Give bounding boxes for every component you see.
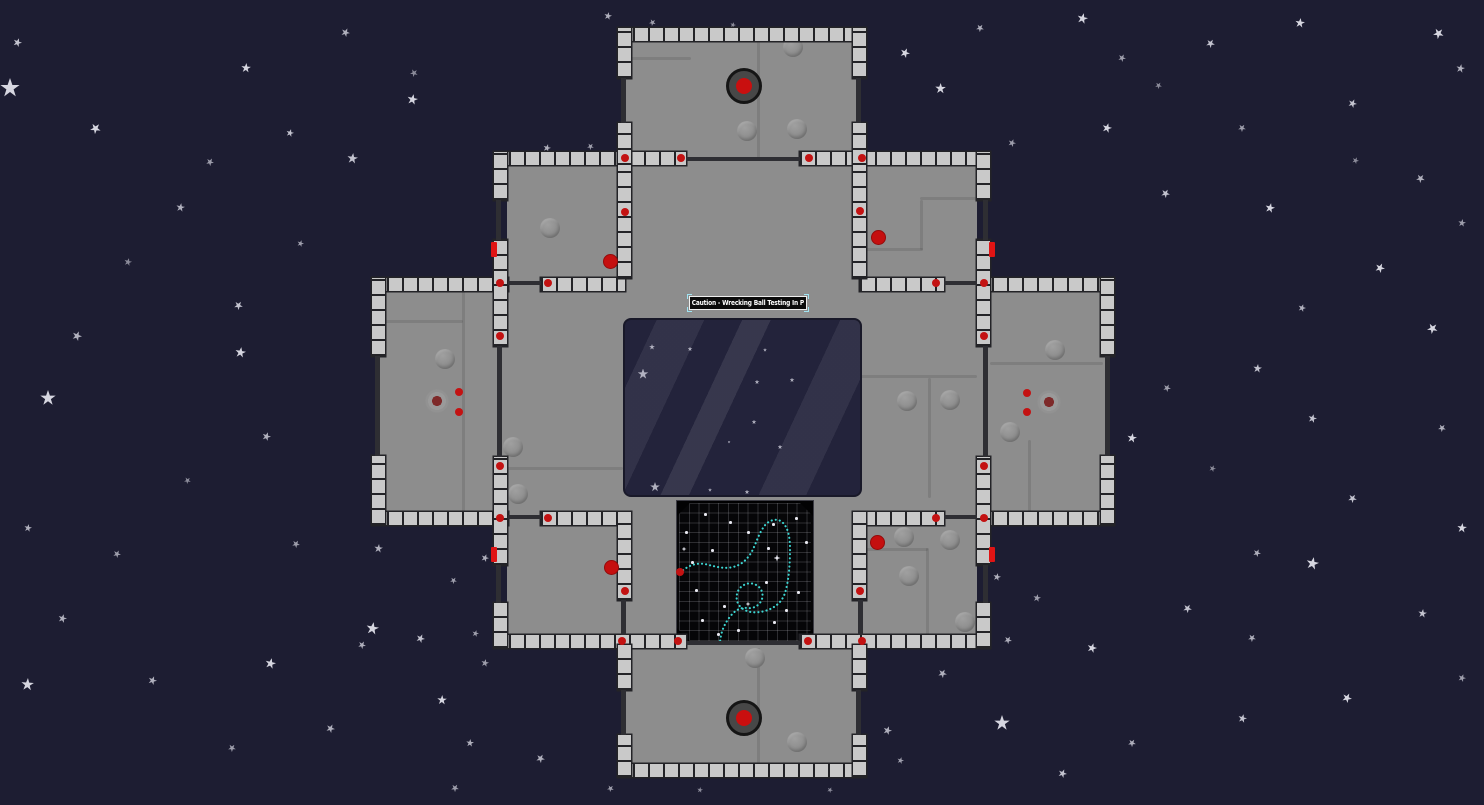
sensor-dot[interactable] (621, 587, 629, 595)
selection-handle-top-left[interactable] (687, 294, 692, 299)
sensor-dot[interactable] (621, 208, 629, 216)
sensor-dot[interactable] (856, 587, 864, 595)
sensor-dot[interactable] (980, 279, 988, 287)
splat-marker (1036, 389, 1062, 415)
splat-marker (424, 388, 450, 414)
airlock-door-marker[interactable] (491, 547, 497, 562)
sensor-dot[interactable] (455, 388, 463, 396)
hatch-button[interactable] (726, 68, 762, 104)
airlock-door-marker[interactable] (491, 242, 497, 257)
sensor-dot[interactable] (1023, 408, 1031, 416)
sensor-dot[interactable] (621, 154, 629, 162)
guard-dot[interactable] (871, 230, 886, 245)
sensor-dot[interactable] (932, 514, 940, 522)
airlock-door-marker[interactable] (989, 242, 995, 257)
sensor-dot[interactable] (544, 279, 552, 287)
entity-layer (0, 0, 1484, 805)
guard-dot[interactable] (604, 560, 619, 575)
sensor-dot[interactable] (496, 462, 504, 470)
sensor-dot[interactable] (804, 637, 812, 645)
sensor-dot[interactable] (496, 279, 504, 287)
sensor-dot[interactable] (496, 514, 504, 522)
caution-sign[interactable]: Caution - Wrecking Ball Testing In P (689, 296, 807, 310)
sensor-dot[interactable] (677, 154, 685, 162)
caution-sign-label: Caution - Wrecking Ball Testing In P (692, 299, 804, 307)
sensor-dot[interactable] (858, 637, 866, 645)
sensor-dot[interactable] (858, 154, 866, 162)
airlock-door-marker[interactable] (989, 547, 995, 562)
sensor-dot[interactable] (856, 207, 864, 215)
sensor-dot[interactable] (980, 514, 988, 522)
sensor-dot[interactable] (980, 462, 988, 470)
sensor-dot[interactable] (618, 637, 626, 645)
selection-handle-top-right[interactable] (804, 294, 809, 299)
sensor-dot[interactable] (496, 332, 504, 340)
sensor-dot[interactable] (980, 332, 988, 340)
sensor-dot[interactable] (674, 637, 682, 645)
sensor-dot[interactable] (455, 408, 463, 416)
guard-dot[interactable] (870, 535, 885, 550)
selection-handle-bottom-left[interactable] (687, 307, 692, 312)
sensor-dot[interactable] (805, 154, 813, 162)
game-viewport: Caution - Wrecking Ball Testing In P (0, 0, 1484, 805)
hatch-button[interactable] (726, 700, 762, 736)
sensor-dot[interactable] (932, 279, 940, 287)
sensor-dot[interactable] (544, 514, 552, 522)
selection-handle-bottom-right[interactable] (804, 307, 809, 312)
guard-dot[interactable] (603, 254, 618, 269)
sensor-dot[interactable] (1023, 389, 1031, 397)
